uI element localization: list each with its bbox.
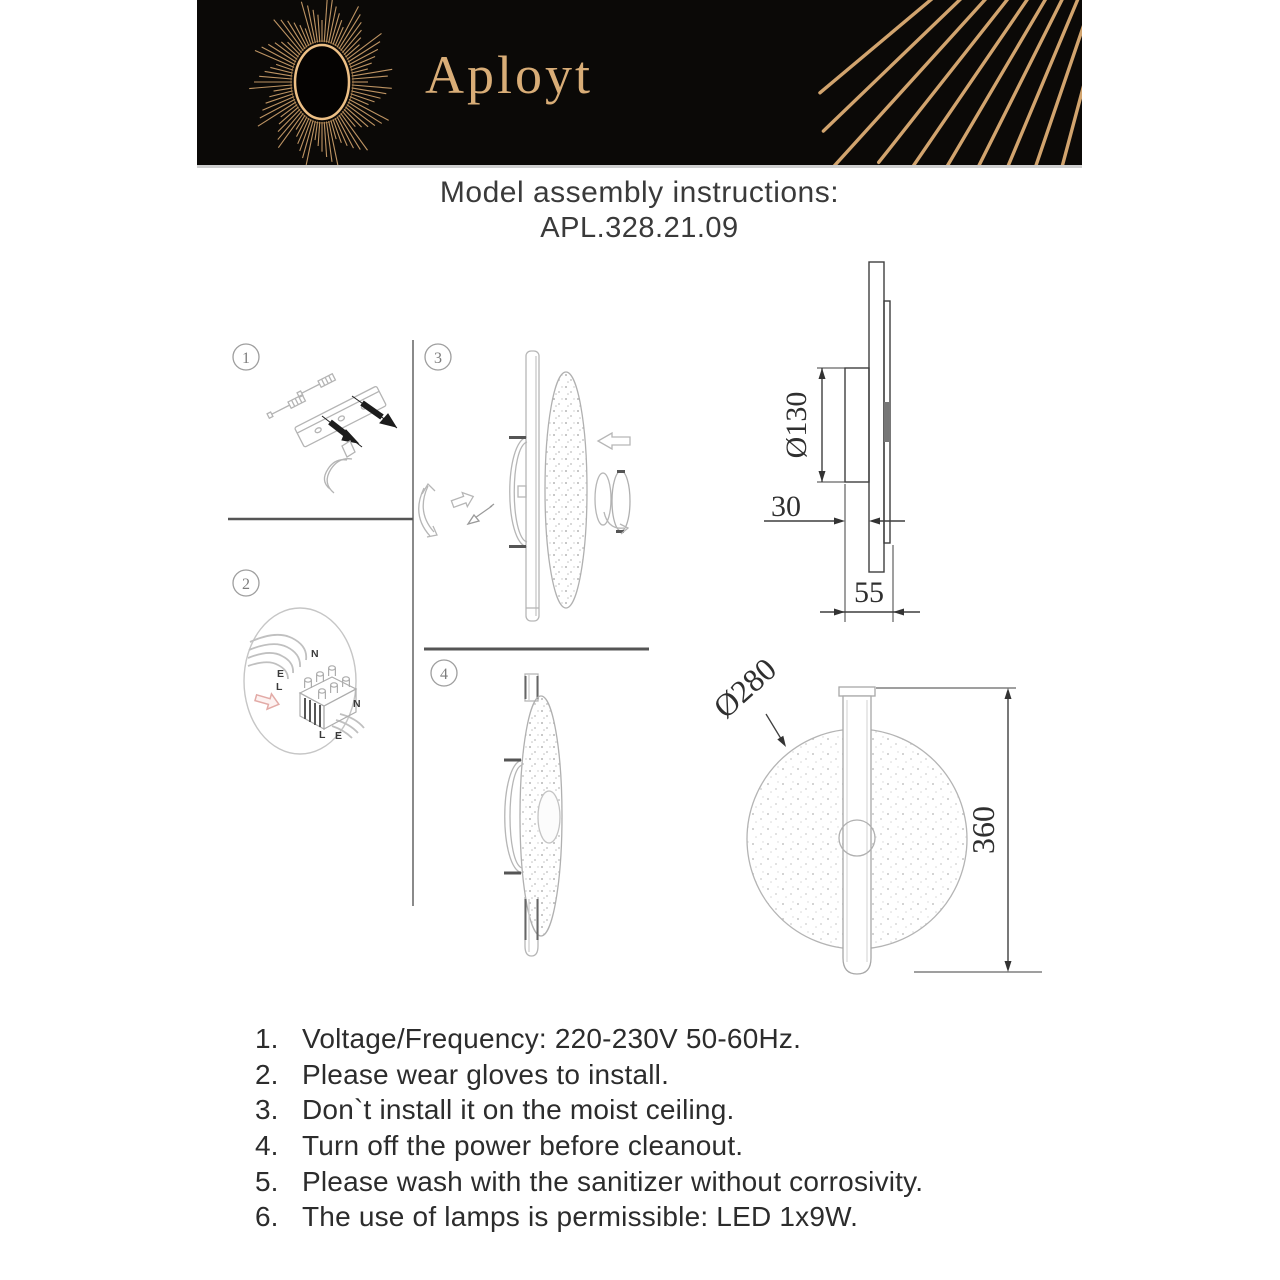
small-part — [342, 441, 355, 457]
side-view-dimension-drawing: Ø130 30 55 — [764, 262, 920, 622]
label-n-top: N — [311, 648, 319, 660]
tube-top — [525, 674, 538, 701]
step-2-number: 2 — [242, 576, 250, 593]
step-4-assembled-diagram — [504, 674, 562, 956]
label-l-left: L — [276, 681, 283, 693]
step-4-number: 4 — [440, 666, 448, 683]
dim-130: Ø130 — [780, 368, 846, 482]
instructions-list: 1. Voltage/Frequency: 220-230V 50-60Hz. … — [255, 1021, 1085, 1235]
dim-55: 55 — [820, 545, 920, 622]
instruction-text: Turn off the power before cleanout. — [302, 1130, 743, 1162]
instruction-number: 6. — [255, 1201, 302, 1233]
instruction-item: 1. Voltage/Frequency: 220-230V 50-60Hz. — [255, 1021, 1085, 1057]
label-e-bottom: E — [335, 730, 342, 742]
dim-280: Ø280 — [706, 651, 786, 747]
instruction-item: 4. Turn off the power before cleanout. — [255, 1128, 1085, 1164]
center-lens — [538, 791, 560, 843]
instruction-item: 6. The use of lamps is permissible: LED … — [255, 1199, 1085, 1235]
instruction-number: 2. — [255, 1059, 302, 1091]
instruction-number: 3. — [255, 1094, 302, 1126]
step-3-shade-mounting-diagram — [419, 351, 630, 621]
push-arrow-icon — [450, 489, 476, 511]
front-view-dimension-drawing: Ø280 360 — [706, 651, 1042, 974]
instruction-number: 5. — [255, 1166, 302, 1198]
label-l-bottom: L — [319, 729, 326, 741]
rotate-arrow-left — [419, 484, 437, 537]
label-n-right: N — [353, 698, 361, 710]
terminal-pins — [305, 666, 350, 699]
slide-arrow-icon — [598, 433, 630, 449]
instruction-text: Don`t install it on the moist ceiling. — [302, 1094, 734, 1126]
wall-offset-label: 30 — [771, 490, 801, 523]
total-height-label: 360 — [965, 806, 1001, 854]
step-2-wiring-diagram: N E L N L E — [244, 608, 364, 754]
anchor-screw-left — [267, 395, 306, 419]
step-3-number: 3 — [434, 350, 442, 367]
shade-side-view — [545, 372, 587, 608]
shade-edge — [869, 262, 884, 572]
instruction-text: Please wear gloves to install. — [302, 1059, 669, 1091]
total-depth-label: 55 — [854, 576, 884, 609]
tube-cap — [839, 687, 875, 696]
instruction-item: 5. Please wash with the sanitizer withou… — [255, 1164, 1085, 1200]
panel-dividers — [228, 340, 649, 906]
instruction-item: 2. Please wear gloves to install. — [255, 1057, 1085, 1093]
insert-arrow-icon — [254, 690, 281, 712]
instruction-item: 3. Don`t install it on the moist ceiling… — [255, 1092, 1085, 1128]
shade-diameter-label: Ø280 — [706, 651, 783, 725]
instruction-text: The use of lamps is permissible: LED 1x9… — [302, 1201, 858, 1233]
step-1-bracket-diagram — [267, 374, 397, 493]
instruction-text: Voltage/Frequency: 220-230V 50-60Hz. — [302, 1023, 801, 1055]
lamp-tube — [526, 351, 539, 621]
instruction-number: 1. — [255, 1023, 302, 1055]
mount-box — [845, 368, 869, 482]
mount-diameter-label: Ø130 — [780, 392, 813, 459]
screw-icon — [468, 504, 494, 524]
ring-fastener — [595, 471, 630, 534]
instruction-text: Please wash with the sanitizer without c… — [302, 1166, 923, 1198]
step-badges: 1 2 3 4 — [233, 344, 457, 686]
instruction-number: 4. — [255, 1130, 302, 1162]
step-1-number: 1 — [242, 350, 250, 367]
label-e-left: E — [277, 668, 284, 680]
